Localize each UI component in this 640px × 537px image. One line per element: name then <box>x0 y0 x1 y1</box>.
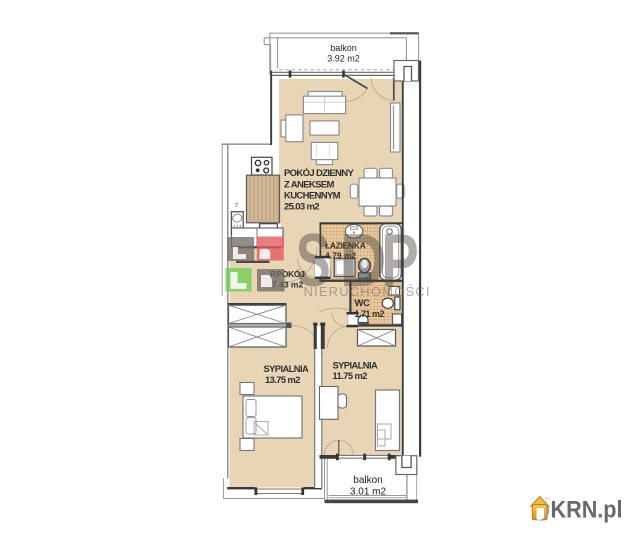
svg-text:POKÓJ DZIENNY: POKÓJ DZIENNY <box>284 167 354 179</box>
svg-text:25.03 m2: 25.03 m2 <box>284 202 319 213</box>
svg-text:11.75 m2: 11.75 m2 <box>333 371 368 381</box>
svg-text:3.01 m2: 3.01 m2 <box>350 487 387 498</box>
svg-text:SYPIALNIA: SYPIALNIA <box>333 361 378 371</box>
svg-text:SYPIALNIA: SYPIALNIA <box>264 364 309 374</box>
svg-text:1.71 m2: 1.71 m2 <box>355 309 385 319</box>
svg-text:NIERUCHOMOŚCI: NIERUCHOMOŚCI <box>304 284 430 299</box>
svg-text:3.92 m2: 3.92 m2 <box>327 54 360 64</box>
svg-text:balkon: balkon <box>330 43 357 53</box>
svg-text:balkon: balkon <box>353 475 382 486</box>
svg-text:KUCHENNYM: KUCHENNYM <box>284 191 341 202</box>
svg-text:KRN.pl: KRN.pl <box>551 495 623 522</box>
svg-text:Z ANEKSEM: Z ANEKSEM <box>284 180 334 191</box>
svg-text:13.75 m2: 13.75 m2 <box>265 375 300 385</box>
svg-text:z: z <box>235 202 238 209</box>
